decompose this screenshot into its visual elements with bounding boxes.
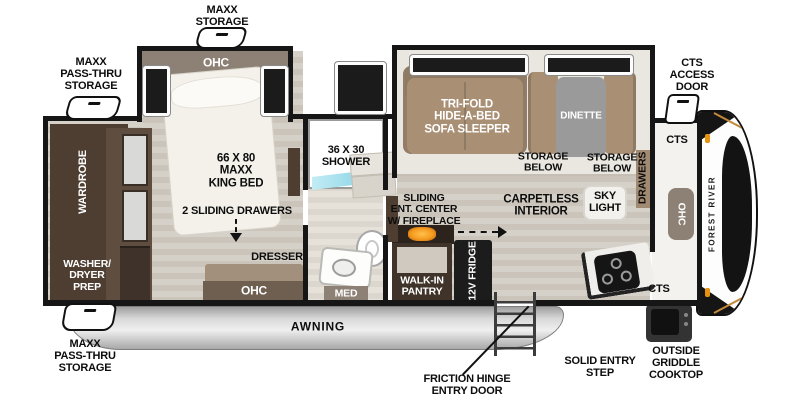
bath-left-wall <box>303 225 308 302</box>
down-arrow <box>235 219 237 232</box>
cts-lower-label: CTS <box>648 284 669 296</box>
med-label: MED <box>335 288 358 299</box>
sliding-drawers-label: 2 SLIDING DRAWERS <box>182 206 292 218</box>
bedroom-ohc-label: OHC <box>203 57 229 70</box>
storage-below-left-label: STORAGE BELOW <box>518 152 568 175</box>
bath-right-wall <box>383 235 388 302</box>
side-ohc-label: OHC <box>675 203 686 226</box>
bed-pillow <box>170 73 264 111</box>
kitchen-wall <box>650 120 655 252</box>
outside-griddle-label: OUTSIDE GRIDDLE COOKTOP <box>649 346 703 382</box>
shower-right-wall <box>383 114 388 190</box>
marker-light <box>705 134 710 143</box>
king-bed-label: 66 X 80 MAXX KING BED <box>209 152 264 189</box>
entertainment-center <box>392 225 454 244</box>
washer-dryer-label: WASHER/ DRYER PREP <box>63 259 111 293</box>
dinette-bench <box>604 72 636 154</box>
down-arrow-head <box>230 233 242 242</box>
drawers-label: DRAWERS <box>637 152 648 204</box>
solid-entry-step-label: SOLID ENTRY STEP <box>564 356 635 380</box>
griddle-knob <box>684 313 688 317</box>
front-cap: FOREST RIVER <box>696 110 758 316</box>
friction-hinge-label: FRICTION HINGE ENTRY DOOR <box>423 374 510 398</box>
cts-access-door-label: CTS ACCESS DOOR <box>670 58 715 94</box>
bedroom-right-cabinet <box>288 148 300 196</box>
maxx-passthru-top-door <box>64 96 123 120</box>
maxx-storage-door <box>194 27 248 49</box>
dresser-label: DRESSER <box>251 252 303 264</box>
living-slideout-right-wall <box>650 45 655 123</box>
griddle-cooktop <box>646 304 692 342</box>
wardrobe-label: WARDROBE <box>78 150 90 214</box>
maxx-storage-label: MAXX STORAGE <box>196 5 249 29</box>
bottom-wall-right <box>536 300 702 306</box>
rear-left-wall <box>43 116 48 306</box>
griddle-screen <box>651 309 679 335</box>
brand-logo: FOREST RIVER <box>709 176 718 252</box>
burner <box>610 257 623 270</box>
burner <box>620 270 633 283</box>
marker-light <box>705 288 710 297</box>
sink-basin <box>331 258 357 278</box>
pantry-interior <box>397 247 447 273</box>
front-mid-window <box>335 62 386 114</box>
front-cap-windshield <box>722 136 752 292</box>
bath-vanity-sink <box>318 246 374 289</box>
griddle-knob <box>684 322 688 326</box>
maxx-passthru-top-label: MAXX PASS-THRU STORAGE <box>60 57 122 93</box>
entry-path-arrow <box>458 231 498 233</box>
exterior-right-wall <box>697 118 702 305</box>
ent-center-label: SLIDING ENT. CENTER W/ FIREPLACE <box>388 193 461 227</box>
wardrobe-mirror-door <box>122 190 148 242</box>
entry-step-ladder <box>494 292 536 356</box>
dinette-window <box>545 55 633 75</box>
shower-left-wall <box>303 114 308 190</box>
bedroom-slideout-left-wall <box>137 46 142 122</box>
maxx-passthru-bottom-label: MAXX PASS-THRU STORAGE <box>54 339 116 375</box>
wardrobe-mirror-door <box>122 134 148 186</box>
entry-path-arrow-head <box>498 226 507 238</box>
shower-label: 36 X 30 SHOWER <box>322 145 370 169</box>
cooktop <box>593 250 640 294</box>
fridge-label: 12V FRIDGE <box>467 241 478 300</box>
burner <box>601 273 614 286</box>
maxx-passthru-bottom-door <box>61 303 118 331</box>
sofa-window <box>410 55 528 75</box>
bedroom-right-window <box>261 66 288 116</box>
fireplace-flame <box>408 227 436 241</box>
sofa-label: TRI-FOLD HIDE-A-BED SOFA SLEEPER <box>424 98 509 135</box>
storage-below-right-label: STORAGE BELOW <box>587 153 637 176</box>
awning-label: AWNING <box>291 321 345 334</box>
skylight-label: SKY LIGHT <box>589 191 621 215</box>
living-slideout-left-wall <box>392 45 397 178</box>
carpetless-label: CARPETLESS INTERIOR <box>503 194 578 219</box>
living-slideout-top-wall <box>392 45 655 50</box>
wardrobe-lower-drawers <box>120 246 150 300</box>
floorplan: FOREST RIVER OHC 66 X 80 MAXX KING BED 2… <box>0 0 800 400</box>
dresser-ohc-label: OHC <box>241 285 267 298</box>
bedroom-slideout-right-wall <box>288 46 293 122</box>
dinette-bench <box>528 72 558 154</box>
cts-upper-label: CTS <box>666 135 687 147</box>
pantry-label: WALK-IN PANTRY <box>400 276 444 299</box>
bedroom-left-window <box>143 66 170 116</box>
dinette-label: DINETTE <box>560 112 601 123</box>
cts-access-door <box>664 94 700 124</box>
